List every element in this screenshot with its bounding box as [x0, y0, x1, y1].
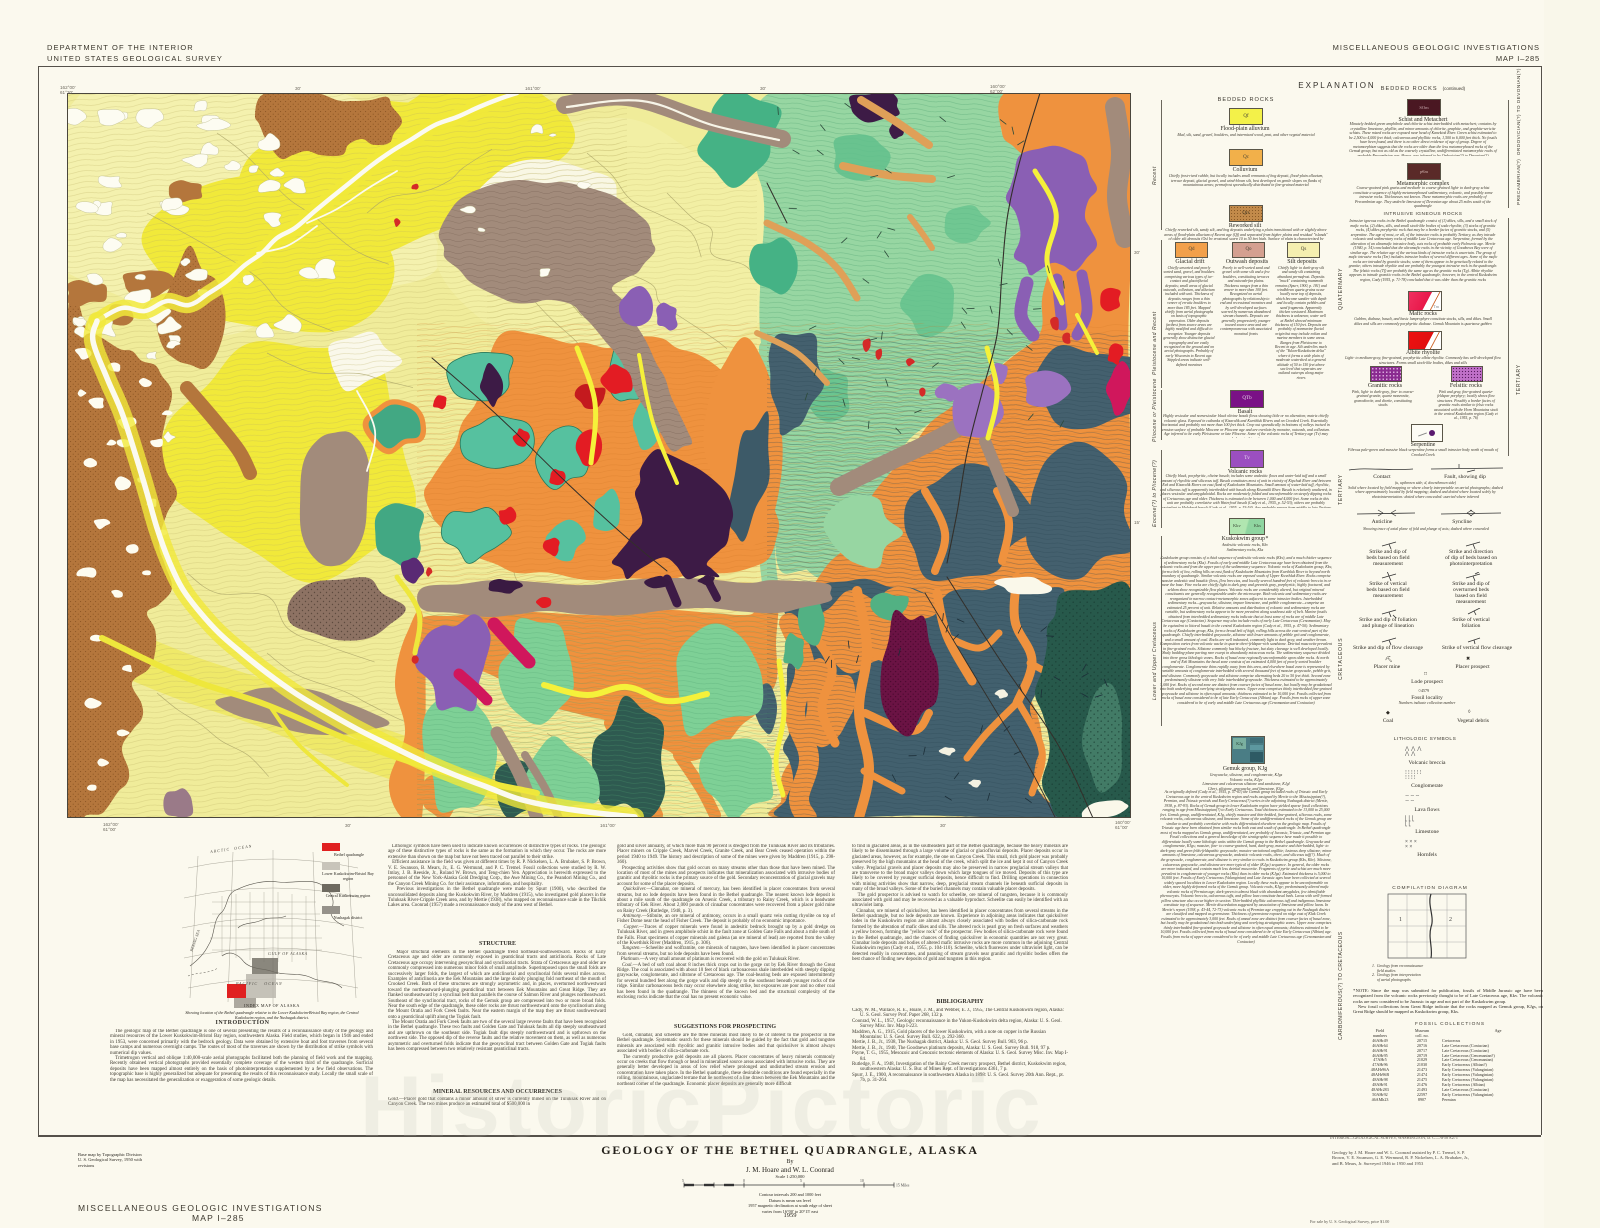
svg-text:15 Miles: 15 Miles	[896, 1184, 910, 1188]
svg-text:1: 1	[1399, 917, 1402, 923]
svg-text:5: 5	[800, 1179, 802, 1183]
svg-text:5: 5	[682, 1179, 684, 1183]
svg-text:10: 10	[860, 1179, 864, 1183]
svg-text:2: 2	[1449, 917, 1452, 923]
svg-text:0: 0	[743, 1179, 745, 1183]
